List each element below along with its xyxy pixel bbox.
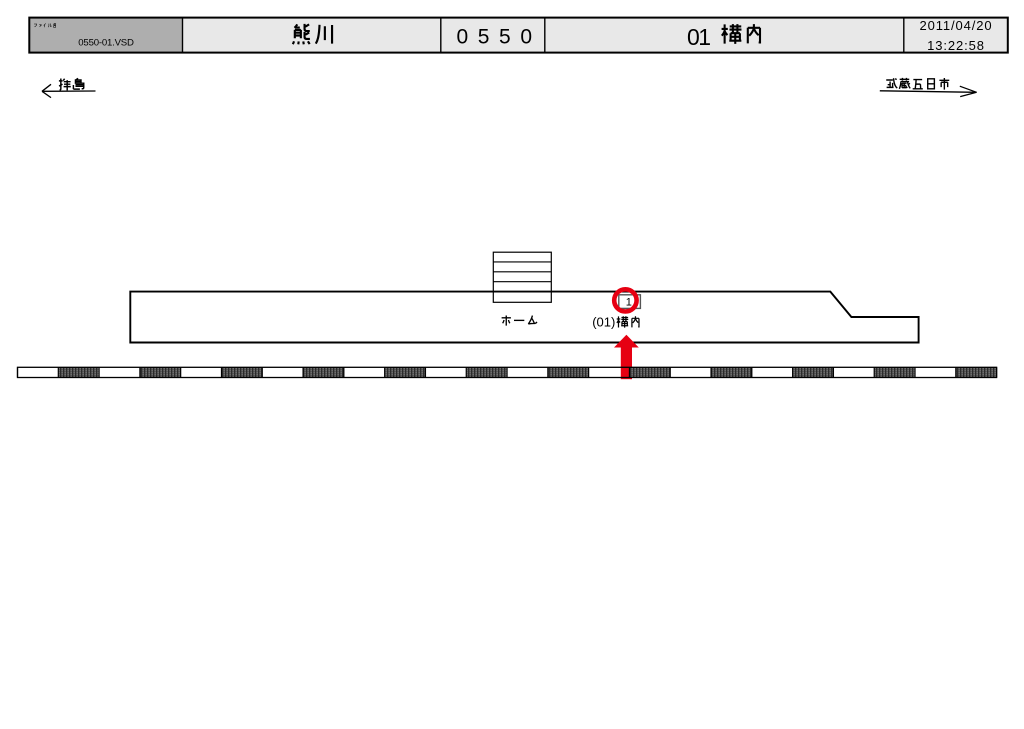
svg-text:01: 01	[687, 24, 710, 50]
svg-text:2011/04/20: 2011/04/20	[919, 18, 992, 33]
svg-text:1: 1	[626, 297, 632, 309]
svg-text:13:22:58: 13:22:58	[927, 38, 985, 53]
svg-text:(01): (01)	[592, 314, 615, 329]
svg-text:0550: 0550	[457, 25, 542, 48]
svg-text:0550-01.VSD: 0550-01.VSD	[78, 37, 134, 48]
